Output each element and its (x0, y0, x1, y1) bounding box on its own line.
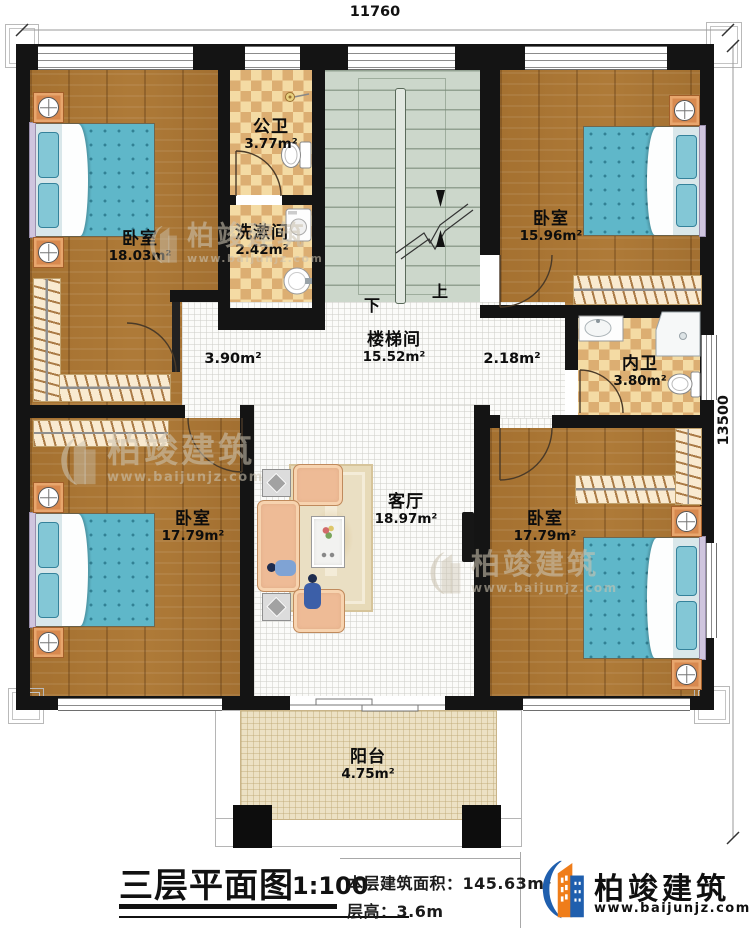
titleblock-divider-h (340, 858, 520, 859)
window-right-inner-bath (701, 335, 717, 400)
brand-logo-icon (540, 854, 588, 920)
room-name: 公卫 (244, 118, 297, 137)
wall-stair-trbed-a (480, 70, 500, 255)
stair-down-label: 下 (364, 292, 380, 316)
bed-sheet-fold (647, 127, 673, 235)
brand-url: www.baijunjz.com (594, 901, 750, 916)
room-name: 洗漱间 (235, 224, 289, 243)
stair-up-label: 上 (432, 278, 448, 302)
wall-tlbed-corridor-cap (170, 290, 230, 302)
room-label-stairwell: 楼梯间 15.52m² (363, 331, 426, 365)
room-name: 楼梯间 (363, 331, 426, 350)
room-label-balcony: 阳台 4.75m² (341, 748, 394, 782)
end-table-top (262, 469, 291, 497)
room-label-bedroom-tl: 卧室 18.03m² (109, 230, 172, 264)
room-name: 卧室 (520, 210, 583, 229)
bed-pillows (38, 522, 59, 618)
bed-pillows (676, 546, 697, 649)
lamp-icon (38, 242, 59, 263)
room-label-bedroom-tr: 卧室 15.96m² (520, 210, 583, 244)
room-name: 卧室 (162, 510, 225, 529)
bed-sheet-fold (62, 124, 88, 236)
wardrobe-tr (573, 275, 702, 305)
floor-area-text: 本层建筑面积：145.63m² (347, 870, 552, 894)
coffee-table (311, 516, 345, 568)
hall-area-right: 2.18m² (483, 351, 540, 367)
wall-tlbed-bath (218, 70, 230, 312)
room-area: 3.77m² (244, 137, 297, 152)
hall-area-left: 3.90m² (204, 351, 261, 367)
lamp-icon (38, 487, 59, 508)
wall-innerbath-left (565, 318, 578, 370)
end-table-bottom (262, 593, 291, 621)
wardrobe-bl (33, 420, 169, 447)
room-label-inner-bath: 内卫 3.80m² (613, 355, 666, 389)
floor-height-text: 层高：3.6m (347, 898, 444, 922)
room-area: 3.80m² (613, 374, 666, 389)
wall-trbed-corridor (480, 305, 714, 318)
window-top-public-bath (245, 46, 300, 70)
wall-blbed-living (240, 405, 254, 700)
room-label-living: 客厅 18.97m² (375, 493, 438, 527)
balcony-door-opening (290, 696, 445, 710)
room-name: 卧室 (109, 230, 172, 249)
drawing-title: 三层平面图 (119, 858, 294, 907)
bed-sheet-fold (62, 514, 88, 626)
nightstand-lamp (669, 95, 700, 126)
tv-wall-unit (462, 512, 474, 562)
person-standing (299, 574, 327, 612)
wall-brbed-north-b (552, 415, 714, 428)
dimension-line-top (16, 24, 734, 36)
room-area: 3.90m² (204, 351, 261, 367)
bed-top-right (583, 126, 702, 236)
bed-pillows (676, 135, 697, 228)
balcony-column-right (462, 805, 501, 848)
lamp-icon (38, 97, 59, 118)
wardrobe-br-horizontal (575, 475, 677, 504)
room-area: 17.79m² (162, 529, 225, 544)
stair-railing (395, 88, 406, 304)
nightstand-lamp (33, 92, 64, 123)
window-top-stairwell (348, 46, 455, 70)
lamp-icon (676, 511, 697, 532)
bed-bottom-right (583, 537, 702, 659)
lamp-icon (676, 664, 697, 685)
wardrobe-tl-horizontal (59, 374, 171, 402)
window-top-bedroom-tl (38, 46, 193, 70)
title-underline-thick (119, 904, 337, 909)
bed-bottom-left (33, 513, 155, 627)
balcony-column-left (233, 805, 272, 848)
room-name: 阳台 (341, 748, 394, 767)
floor-plan-page: 卧室 18.03m² 公卫 3.77m² 洗漱间 2.42m² 楼梯间 15.5… (0, 0, 750, 932)
dimension-top-value: 11760 (350, 4, 400, 20)
room-area: 15.96m² (520, 229, 583, 244)
room-label-public-bath: 公卫 3.77m² (244, 118, 297, 152)
room-name: 内卫 (613, 355, 666, 374)
room-area: 4.75m² (341, 767, 394, 782)
room-label-bedroom-bl: 卧室 17.79m² (162, 510, 225, 544)
sofa-single-top (293, 464, 343, 506)
room-area: 17.79m² (514, 529, 577, 544)
bed-sheet-fold (647, 538, 673, 658)
room-area: 18.03m² (109, 249, 172, 264)
nightstand-lamp (33, 237, 64, 268)
room-area: 2.42m² (235, 243, 289, 258)
lamp-icon (674, 100, 695, 121)
window-bottom-bedroom-br (523, 698, 690, 711)
bed-pillows (38, 132, 59, 228)
person-on-sofa (266, 556, 296, 580)
nightstand-lamp (33, 482, 64, 513)
window-top-bedroom-tr (525, 46, 667, 70)
bed-top-left (33, 123, 155, 237)
room-area: 18.97m² (375, 512, 438, 527)
wall-exterior-left (16, 44, 30, 710)
wardrobe-br-vertical (675, 428, 702, 505)
nightstand-lamp (33, 627, 64, 658)
wall-living-brbed (474, 405, 490, 700)
window-bottom-bedro om-bl (58, 698, 222, 711)
room-label-bedroom-br: 卧室 17.79m² (514, 510, 577, 544)
room-label-washroom: 洗漱间 2.42m² (235, 224, 289, 258)
room-name: 卧室 (514, 510, 577, 529)
nightstand-lamp (671, 506, 702, 537)
wall-bath-stair (312, 70, 325, 312)
lamp-icon (38, 632, 59, 653)
wall-washroom-corridor (218, 308, 325, 330)
room-name: 客厅 (375, 493, 438, 512)
room-area: 2.18m² (483, 351, 540, 367)
wall-pubbath-washroom-b (282, 195, 312, 205)
wall-brbed-north-a (474, 415, 500, 428)
dimension-right-value: 13500 (716, 395, 732, 445)
room-area: 15.52m² (363, 350, 426, 365)
wall-pubbath-washroom-a (230, 195, 236, 205)
floor-corridor-doorway (490, 418, 560, 428)
nightstand-lamp (671, 659, 702, 690)
wardrobe-tl-vertical (33, 278, 61, 402)
wall-tlbed-blbed (16, 405, 185, 418)
